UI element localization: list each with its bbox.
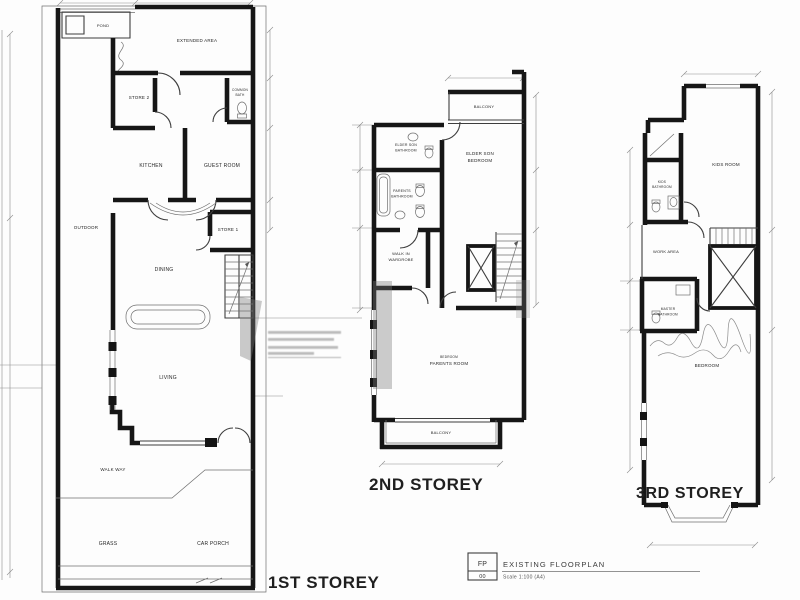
label-parents-bath-1: PARENTS: [393, 189, 411, 193]
label-outdoor: OUTDOOR: [74, 225, 99, 230]
bathtub-icon: [377, 174, 390, 216]
driveway-lines: [58, 566, 253, 583]
top-window-lines: [706, 85, 740, 89]
bay-feature-inner: [131, 310, 205, 324]
label-parents-room-2: PARENTS ROOM: [430, 361, 469, 366]
label-wardrobe-1: WALK IN: [392, 251, 410, 256]
label-grass: GRASS: [99, 541, 118, 547]
interior-walls: [640, 133, 697, 331]
sliding-door: [140, 441, 205, 445]
dimension-lines: [352, 75, 539, 467]
dining-arch: [150, 203, 216, 215]
drawing-code: FP: [478, 561, 487, 568]
bay-window: [664, 505, 734, 522]
label-balcony-bottom: BALCONY: [431, 430, 452, 435]
left-window-lines: [642, 403, 647, 460]
floorplan-drawing: POND EXTENDED AREA STORE 2 COMMON BATH K…: [0, 0, 800, 600]
label-elder-son-bed-2: BEDROOM: [468, 158, 493, 163]
label-master-bath-2: BATHROOM: [658, 313, 678, 317]
label-store2: STORE 2: [129, 95, 150, 100]
watermark-glyph-3: [516, 280, 530, 318]
label-kitchen: KITCHEN: [139, 163, 163, 169]
shower-door-line: [650, 134, 674, 156]
label-parents-bath-2: BATHROOM: [391, 195, 413, 199]
label-elder-son-bed-1: ELDER SON: [466, 151, 494, 156]
elevator-shaft: [710, 246, 756, 308]
label-elder-son-bath-2: BATHROOM: [395, 149, 417, 153]
label-common-bath-1: COMMON: [232, 88, 249, 92]
watermark-sketch: [650, 319, 751, 359]
wall-pier: [205, 438, 217, 447]
label-guest-room: GUEST ROOM: [204, 163, 240, 169]
label-kids-bath-2: BATHROOM: [652, 185, 672, 189]
label-living: LIVING: [159, 375, 177, 381]
window-mullions: [640, 412, 647, 446]
watermark-fine-print: [268, 331, 341, 358]
staircase: [710, 228, 758, 246]
label-master-bath-1: MASTER: [661, 307, 676, 311]
label-wardrobe-2: WARDROBE: [388, 257, 413, 262]
elevator-shaft: [468, 246, 494, 290]
label-bedroom: BEDROOM: [695, 363, 720, 368]
bay-feature-outer: [126, 305, 210, 329]
watermark: [240, 280, 530, 389]
label-kids-room: KIDS ROOM: [712, 162, 740, 167]
floorplan-sheet: POND EXTENDED AREA STORE 2 COMMON BATH K…: [0, 0, 800, 600]
balcony-sliding-door: [395, 419, 490, 423]
bay-posts: [661, 502, 738, 508]
storey2-title: 2ND STOREY: [369, 475, 483, 494]
drawing-number: 00: [479, 574, 486, 580]
label-work-area: WORK AREA: [653, 249, 679, 254]
storey3-plan: KIDS ROOM KIDS BATHROOM WORK AREA MASTER…: [620, 71, 775, 548]
scale-note: Scale 1:100 (A4): [503, 575, 545, 581]
watermark-glyph-1: [240, 297, 262, 361]
label-elder-son-bath-1: ELDER SON: [395, 143, 417, 147]
title-block: FP 00 EXISTING FLOORPLAN Scale 1:100 (A4…: [468, 553, 700, 581]
garden-curve: [118, 42, 124, 73]
toilet-icon: [238, 102, 247, 118]
watermark-glyph-2: [373, 281, 392, 389]
label-kids-bath-1: KIDS: [658, 180, 666, 184]
label-store1: STORE 1: [218, 227, 239, 232]
label-pond: POND: [97, 23, 109, 28]
storey1-title: 1ST STOREY: [268, 573, 380, 592]
label-car-porch: CAR PORCH: [197, 541, 229, 547]
drawing-title: EXISTING FLOORPLAN: [503, 560, 605, 569]
label-dining: DINING: [155, 267, 174, 273]
door-arcs: [148, 73, 250, 443]
label-extended-area: EXTENDED AREA: [177, 38, 217, 43]
grass-boundary: [56, 470, 253, 498]
dimension-lines-left: [0, 30, 56, 580]
label-balcony-top: BALCONY: [474, 104, 495, 109]
label-walkway: WALK WAY: [100, 467, 125, 472]
toilet-icons: [416, 146, 434, 218]
storey1-plan: POND EXTENDED AREA STORE 2 COMMON BATH K…: [0, 0, 380, 592]
storey3-title: 3RD STOREY: [636, 485, 744, 502]
label-parents-room-1: BEDROOM: [440, 355, 458, 359]
label-common-bath-2: BATH: [235, 93, 245, 97]
exterior-walls: [644, 86, 758, 505]
toilet-icons: [652, 200, 660, 323]
